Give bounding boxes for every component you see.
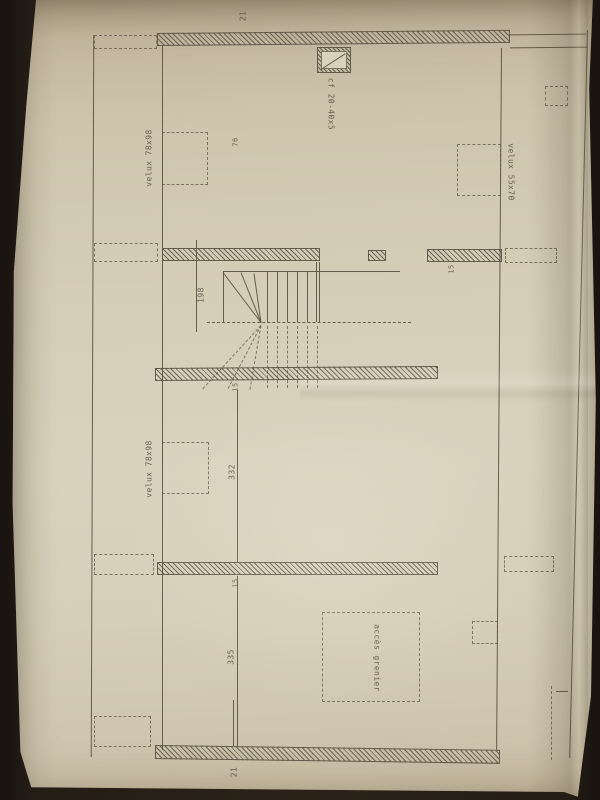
border-dashed-bracket-top-right bbox=[545, 86, 568, 106]
eaves-dashed-mid-right bbox=[505, 248, 557, 263]
eaves-dashed-top-left bbox=[94, 35, 157, 49]
page-border-left bbox=[91, 35, 95, 757]
wall-mid-stub bbox=[368, 250, 386, 261]
stair-tread bbox=[307, 272, 308, 322]
dim-line-mid-room bbox=[237, 390, 238, 562]
stair-winder-line bbox=[223, 272, 262, 323]
eaves-dashed-lower-right bbox=[504, 556, 554, 572]
velux-top-right-box bbox=[457, 144, 501, 196]
label-velux-top-left: velux 78x98 bbox=[145, 129, 154, 186]
label-wall-thickness-lower: 15 bbox=[232, 578, 241, 587]
small-dashed-box-bottom-right bbox=[472, 621, 498, 644]
velux-top-left-box bbox=[162, 132, 208, 185]
stair-tread bbox=[287, 272, 288, 322]
label-attic-access: accès grenier bbox=[373, 624, 382, 692]
stair-winder-line bbox=[241, 272, 262, 323]
label-chimney-flue: cf 20-40x5 bbox=[327, 78, 336, 130]
label-top-wall-thickness: 21 bbox=[239, 11, 248, 21]
label-top-room-dim: 76 bbox=[232, 137, 241, 146]
attic-access-box bbox=[322, 612, 420, 702]
label-wall-thickness-mid: 15 bbox=[232, 382, 241, 391]
eaves-dashed-mid-left bbox=[94, 243, 158, 262]
dim-line-stair bbox=[196, 240, 197, 332]
wall-mid-left-segment bbox=[162, 248, 320, 261]
eaves-dashed-lower-left bbox=[94, 554, 154, 575]
stair-tread bbox=[297, 272, 298, 322]
wall-top bbox=[157, 30, 510, 46]
label-bottom-wall-thickness: 21 bbox=[230, 767, 239, 777]
dim-extension-bottom bbox=[233, 700, 234, 746]
wall-bottom bbox=[155, 745, 500, 764]
top-edge-line-right-1 bbox=[510, 34, 586, 36]
label-wall-thickness-right: 15 bbox=[448, 264, 457, 273]
scanned-floorplan-photo: 21 cf 20-40x5 velux 78x98 76 velux 55x70… bbox=[0, 0, 600, 800]
stair-right-edge-outer bbox=[319, 262, 320, 322]
label-stair-dim: 198 bbox=[197, 287, 206, 303]
dim-line-bottom-room bbox=[237, 576, 238, 746]
stair-tread bbox=[277, 272, 278, 322]
paper-sheet: 21 cf 20-40x5 velux 78x98 76 velux 55x70… bbox=[0, 0, 600, 800]
label-velux-top-right: velux 55x70 bbox=[507, 143, 516, 200]
hidden-line-bottom-right bbox=[551, 686, 552, 760]
stair-left-edge bbox=[223, 271, 224, 322]
label-mid-room-dim: 332 bbox=[228, 464, 237, 480]
stair-cut-line bbox=[207, 322, 411, 323]
label-bottom-room-dim: 335 bbox=[227, 649, 236, 665]
top-edge-line-right-2 bbox=[510, 47, 588, 49]
stair-right-edge-inner bbox=[316, 262, 317, 322]
wall-lower-mid bbox=[155, 366, 438, 381]
label-velux-mid-left: velux 78x98 bbox=[145, 440, 154, 497]
eaves-dashed-bottom-left bbox=[94, 716, 151, 747]
wall-lower bbox=[157, 562, 438, 575]
page-border-right bbox=[569, 30, 588, 758]
wall-mid-right-segment bbox=[427, 249, 502, 262]
border-tick-right bbox=[556, 691, 568, 692]
stair-top-line bbox=[223, 271, 400, 272]
stair-tread bbox=[267, 272, 268, 322]
velux-mid-left-box bbox=[162, 442, 209, 494]
